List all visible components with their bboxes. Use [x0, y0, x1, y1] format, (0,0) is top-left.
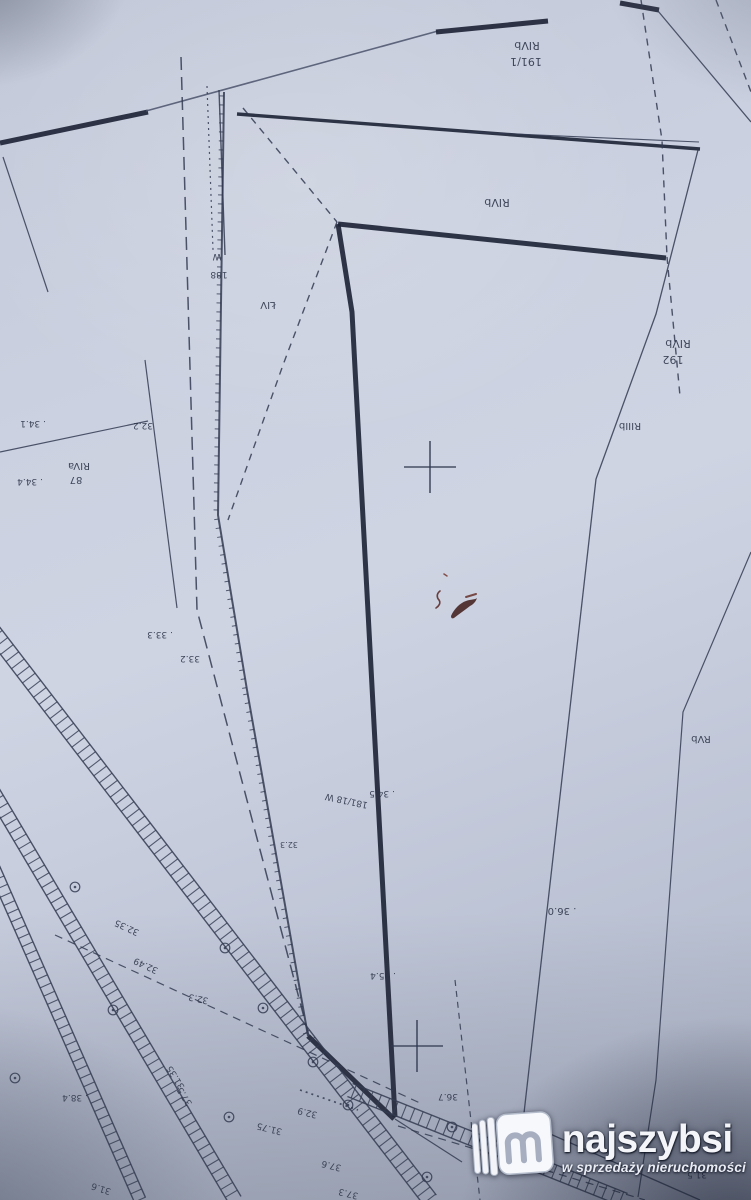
- hatched-road-band-rung: [275, 1001, 288, 1011]
- watermark: najszybsi w sprzedaży nieruchomości: [472, 1111, 746, 1186]
- hatched-road-band-rung: [286, 1016, 299, 1026]
- hatched-road-band-rung: [460, 1128, 465, 1141]
- hatched-road-band-rung: [202, 1151, 214, 1158]
- parcel-top-thick: [338, 224, 666, 258]
- survey-point-dot: [14, 1077, 17, 1080]
- hatched-road-band-rung: [143, 1051, 155, 1058]
- map-label: . 34.5: [369, 788, 395, 798]
- hatched-road-band-rung: [99, 773, 112, 783]
- hatched-road-band-rung: [116, 1156, 127, 1161]
- hatched-road-band-rung: [55, 904, 67, 911]
- hatched-road-band-rung: [149, 837, 162, 847]
- map-label: 32.35: [113, 917, 141, 937]
- hatched-road-band-rung: [77, 745, 90, 755]
- hatched-road-band-rung: [154, 844, 167, 854]
- hatched-road-band-rung: [152, 1066, 164, 1073]
- hatched-road-band-rung: [221, 1182, 233, 1189]
- survey-point-dot: [228, 1116, 231, 1119]
- hatched-road-band-rung: [161, 1082, 173, 1089]
- hatched-road-band-rung: [33, 688, 46, 698]
- hatched-road-band-rung: [165, 859, 178, 869]
- hatched-road-band-rung: [105, 1131, 116, 1136]
- map-label: RVb: [691, 733, 711, 744]
- hatched-road-band-rung: [395, 1158, 408, 1168]
- map-label: 32.9: [296, 1105, 318, 1120]
- map-label: 191/1: [510, 55, 542, 68]
- hatched-road-band-rung: [73, 1057, 84, 1062]
- survey-point-dot: [451, 1126, 454, 1129]
- hatched-road-band-rung: [335, 1080, 348, 1090]
- map-label: . 33.3: [147, 629, 173, 639]
- hatched-road-band-rung: [203, 909, 216, 919]
- parcel-jog-thick: [308, 1036, 394, 1119]
- hatched-road-band-rung: [65, 919, 77, 926]
- hatched-road-band-rung: [426, 1115, 431, 1128]
- hatched-road-band-rung: [127, 1181, 138, 1186]
- hatched-road-band-rung: [269, 994, 282, 1004]
- hatched-road-band-rung: [33, 865, 45, 872]
- map-label: 192: [663, 353, 684, 366]
- hatched-road-band-rung: [247, 966, 260, 976]
- hatched-road-band-rung: [417, 1187, 430, 1197]
- map-label: 32.2: [133, 420, 153, 430]
- map-label: RIVb: [514, 39, 539, 52]
- hatched-road-band-rung: [0, 892, 11, 897]
- hatched-road-band-rung: [280, 1009, 293, 1019]
- hatched-road-band-rung: [5, 819, 17, 826]
- hatched-road-band-rung: [406, 1173, 419, 1183]
- map-label: RIIIb: [619, 420, 641, 431]
- map-label: RIVb: [484, 196, 509, 209]
- map-label: 181/18 W: [324, 791, 369, 810]
- map-label: . 35.4: [370, 970, 396, 980]
- hatched-road-band-rung: [401, 1166, 414, 1176]
- chain-line: [181, 57, 310, 1040]
- hatched-road-band-rung: [401, 1105, 406, 1118]
- hatched-road-band-rung: [47, 1000, 58, 1005]
- hatched-road-band-rung: [363, 1116, 376, 1126]
- survey-point-dot: [347, 1104, 350, 1107]
- hatched-road-band-rung: [72, 737, 85, 747]
- hatched-road-band-rung: [193, 1136, 205, 1143]
- survey-point-dot: [312, 1061, 315, 1064]
- hatched-road-band-rung: [176, 873, 189, 883]
- hatched-road-band-rung: [120, 1012, 132, 1019]
- hatched-road-band-rung: [1, 645, 14, 655]
- dashed-boundary: [243, 108, 337, 222]
- hatched-road-band-rung: [171, 866, 184, 876]
- watermark-text: najszybsi w sprzedaży nieruchomości: [562, 1122, 746, 1175]
- hatched-road-band-rung: [384, 1144, 397, 1154]
- boundary-line: [145, 360, 177, 608]
- hatched-road-band-rung: [225, 937, 238, 947]
- hatched-road-band-rung: [84, 1082, 95, 1087]
- hatched-road-band-rung: [18, 934, 29, 939]
- hatched-road-band-rung: [198, 902, 211, 912]
- hatched-road-band-rung: [22, 942, 33, 947]
- hatched-road-band-rung: [138, 823, 151, 833]
- hatched-road-band-rung: [291, 1023, 304, 1033]
- hatched-road-band-rung: [110, 787, 123, 797]
- hatched-road-band-rung: [69, 1049, 80, 1054]
- boundary-line: [3, 157, 48, 292]
- boundary-line: [658, 11, 751, 122]
- hatched-road-band-rung: [28, 857, 40, 864]
- hatched-road-band-rung: [187, 887, 200, 897]
- ink-scribble: [444, 574, 447, 576]
- hatched-road-band-rung: [97, 973, 109, 980]
- boundary-pencil: [146, 31, 438, 111]
- hatched-road-band-rung: [83, 752, 96, 762]
- map-label: . 38.4: [62, 1092, 88, 1102]
- hatched-road-band-rung: [0, 638, 8, 648]
- hatched-road-band-rung: [216, 1175, 228, 1182]
- hatched-road-band-rung: [124, 1020, 136, 1027]
- watermark-brand: najszybsi: [562, 1122, 733, 1158]
- map-label: 33.2: [180, 653, 200, 663]
- hatched-road-band-rung: [55, 716, 68, 726]
- hatched-road-band-rung: [189, 1128, 201, 1135]
- survey-point-dot: [74, 886, 77, 889]
- hatched-road-band-rung: [7, 909, 18, 914]
- hatched-road-band-rung: [410, 1108, 415, 1121]
- hatched-road-band-rung: [374, 1130, 387, 1140]
- hatched-road-band-rung: [51, 1008, 62, 1013]
- hatched-road-band-rung: [12, 659, 25, 669]
- hatched-road-band-rung: [28, 680, 41, 690]
- hatched-road-band-rung: [129, 1028, 141, 1035]
- hatched-road-band-rung: [116, 795, 129, 805]
- hatched-road-band-rung: [4, 901, 15, 906]
- hatched-road-band-rung: [91, 1098, 102, 1103]
- hatched-road-band-rung: [109, 1140, 120, 1145]
- hatched-road-band-rung: [619, 1192, 624, 1200]
- hatched-road-band-rail: [0, 776, 241, 1196]
- hatched-road-band-rung: [29, 958, 40, 963]
- boundary-thick: [436, 21, 548, 32]
- hatched-road-band-rung: [80, 1074, 91, 1079]
- hatched-road-band-rung: [0, 795, 3, 802]
- dotted-line: [207, 86, 213, 250]
- map-photo: RIVb191/1RIVbRIVb192RIIIbRIVa87. 34.1. 3…: [0, 0, 751, 1200]
- hatched-road-band-rung: [33, 967, 44, 972]
- hatched-road-band-rung: [11, 917, 22, 922]
- boundary-thick-short: [620, 3, 659, 10]
- hatched-road-band-rung: [236, 952, 249, 962]
- hatched-road-band-rung: [209, 916, 222, 926]
- hatched-road-band-rung: [22, 673, 35, 683]
- hatched-road-band-rung: [253, 973, 266, 983]
- ink-scribble: [436, 591, 440, 608]
- serrated-boundary: [218, 92, 308, 1036]
- map-label: 31.75: [256, 1120, 283, 1136]
- hatched-road-band-rung: [132, 816, 145, 826]
- hatched-road-band-rail: [0, 784, 229, 1200]
- map-label: 87: [70, 474, 83, 485]
- hatched-road-band-rung: [19, 842, 31, 849]
- boundary-line: [638, 552, 751, 1197]
- cadastral-map-drawing: RIVb191/1RIVbRIVb192RIIIbRIVa87. 34.1. 3…: [0, 0, 751, 1200]
- map-label: 36.7: [438, 1091, 458, 1101]
- hatched-road-band-rung: [147, 1059, 159, 1066]
- hatched-road-band-rung: [324, 1066, 337, 1076]
- hatched-road-band-rung: [225, 1190, 237, 1197]
- hatched-road-band-rung: [127, 809, 140, 819]
- hatched-road-band-rung: [92, 966, 104, 973]
- hatched-road-band-rung: [65, 1041, 76, 1046]
- map-label: 31.6: [90, 1180, 112, 1196]
- map-label: 32.3: [280, 840, 298, 849]
- map-label: ŁIV: [260, 299, 277, 310]
- survey-point-dot: [262, 1007, 265, 1010]
- hatched-road-band-rung: [330, 1073, 343, 1083]
- hatched-road-band-rung: [368, 1123, 381, 1133]
- hatched-road-band-rung: [113, 1148, 124, 1153]
- hatched-road-band-rung: [17, 666, 30, 676]
- map-label: . 34.4: [17, 476, 43, 486]
- hatched-road-band-rung: [44, 991, 55, 996]
- hatched-road-band-rung: [105, 780, 118, 790]
- hatched-road-band-rung: [62, 1032, 73, 1037]
- hatched-road-band-rung: [220, 930, 233, 940]
- hatched-road-band-rung: [40, 983, 51, 988]
- parcel-right-line: [523, 479, 596, 1122]
- hatched-road-band-rung: [58, 1024, 69, 1029]
- hatched-road-band-rung: [0, 811, 12, 818]
- map-label: 37.3: [338, 1186, 360, 1200]
- hatched-road-band-rung: [341, 1087, 354, 1097]
- hatched-road-band-rung: [102, 1123, 113, 1128]
- hatched-road-band-rung: [0, 876, 4, 881]
- hatched-road-band-rung: [106, 989, 118, 996]
- hatched-road-band-rung: [231, 944, 244, 954]
- hatched-road-band-rung: [61, 723, 74, 733]
- hatched-road-band-rung: [242, 959, 255, 969]
- hatched-road-band-rung: [66, 730, 79, 740]
- hatched-road-band-rung: [207, 1159, 219, 1166]
- hatched-road-band-rung: [182, 880, 195, 890]
- hatched-road-band-rung: [198, 1144, 210, 1151]
- hatched-road-band-rung: [37, 873, 49, 880]
- map-label: RIVa: [68, 460, 90, 471]
- hatched-road-band-rung: [83, 950, 95, 957]
- hatched-road-band-rung: [6, 652, 19, 662]
- hatched-road-band-rung: [39, 695, 52, 705]
- hatched-road-band-rung: [51, 896, 63, 903]
- watermark-tagline: w sprzedaży nieruchomości: [562, 1160, 746, 1175]
- hatched-road-band-rung: [214, 923, 227, 933]
- hatched-road-band-rung: [46, 888, 58, 895]
- hatched-road-band-rung: [435, 1118, 440, 1131]
- hatched-road-band-rung: [138, 1043, 150, 1050]
- hatched-road-band-rung: [0, 803, 8, 810]
- hatched-road-band-rail: [0, 848, 145, 1198]
- dashed-boundary: [641, 0, 667, 257]
- hatched-road-band-rung: [390, 1151, 403, 1161]
- hatched-road-band-rung: [131, 1189, 142, 1194]
- hatched-road-band-rung: [88, 958, 100, 965]
- hatched-road-band-rung: [0, 884, 8, 889]
- hatched-road-band-rung: [101, 981, 113, 988]
- road-edge-thick: [0, 112, 148, 143]
- map-label: . 34.1: [20, 418, 46, 428]
- map-label: RIVb: [665, 337, 690, 350]
- hatched-road-band-rung: [264, 987, 277, 997]
- dashed-boundary: [228, 222, 337, 520]
- hatched-road-band-rung: [94, 766, 107, 776]
- hatched-road-band-rung: [87, 1090, 98, 1095]
- hatched-road-band-rung: [120, 1164, 131, 1169]
- hatched-road-band-rung: [50, 709, 63, 719]
- hatched-road-band-rung: [26, 950, 37, 955]
- hatched-road-band-rung: [42, 881, 54, 888]
- dashed-boundary: [667, 257, 680, 396]
- hatched-road-band-rung: [319, 1059, 332, 1069]
- hatched-road-band-rung: [88, 759, 101, 769]
- boundary-line: [596, 150, 698, 479]
- hatched-road-band-rung: [44, 702, 57, 712]
- hatched-road-band-rung: [0, 630, 2, 640]
- hatched-road-band-rung: [379, 1137, 392, 1147]
- hatched-road-band-rung: [23, 850, 35, 857]
- hatched-road-band-rung: [313, 1051, 326, 1061]
- hatched-road-band-rung: [36, 975, 47, 980]
- hatched-road-band-rung: [10, 826, 22, 833]
- hatched-road-band-rung: [133, 1035, 145, 1042]
- hatched-road-band-rung: [418, 1112, 423, 1125]
- map-label: . 36.0: [548, 905, 577, 916]
- hatched-road-band-rung: [412, 1180, 425, 1190]
- survey-point-dot: [224, 947, 227, 950]
- hatched-road-band-rung: [15, 925, 26, 930]
- ink-scribble: [466, 594, 476, 597]
- hatched-road-band-rung: [184, 1121, 196, 1128]
- map-label: 32.3: [188, 991, 210, 1005]
- hatched-road-band-rung: [258, 980, 271, 990]
- dashed-boundary: [716, 0, 751, 92]
- hatched-road-band-rung: [76, 1065, 87, 1070]
- survey-point-dot: [426, 1176, 429, 1179]
- hatched-road-band-rung: [94, 1107, 105, 1112]
- map-label: 37.6: [320, 1158, 342, 1173]
- hatched-road-band-rung: [423, 1194, 436, 1200]
- hatched-road-band-rung: [14, 834, 26, 841]
- hatched-road-band-rung: [121, 802, 134, 812]
- hatched-road-band-rung: [74, 935, 86, 942]
- map-label: 188: [210, 269, 227, 279]
- hatched-road-band-rung: [160, 852, 173, 862]
- hatched-road-band-rung: [55, 1016, 66, 1021]
- hatched-road-band-rung: [60, 911, 72, 918]
- hatched-road-band-rung: [143, 830, 156, 840]
- hatched-road-band-rung: [193, 894, 206, 904]
- hatched-road-band-rung: [212, 1167, 224, 1174]
- ink-scribble: [451, 598, 477, 618]
- hatched-road-band-rung: [357, 1109, 370, 1119]
- najszybsi-logo-icon: [472, 1111, 554, 1186]
- hatched-road-band-rail: [0, 630, 424, 1200]
- hatched-road-band-rung: [123, 1173, 134, 1178]
- parcel-left-thick: [338, 224, 395, 1117]
- hatched-road-band-rung: [179, 1113, 191, 1120]
- survey-point-dot: [112, 1009, 115, 1012]
- hatched-road-band-rung: [156, 1074, 168, 1081]
- hatched-road-band-rung: [69, 927, 81, 934]
- map-label: W: [212, 251, 221, 261]
- hatched-road-band-rung: [98, 1115, 109, 1120]
- hatched-road-band-rung: [111, 997, 123, 1004]
